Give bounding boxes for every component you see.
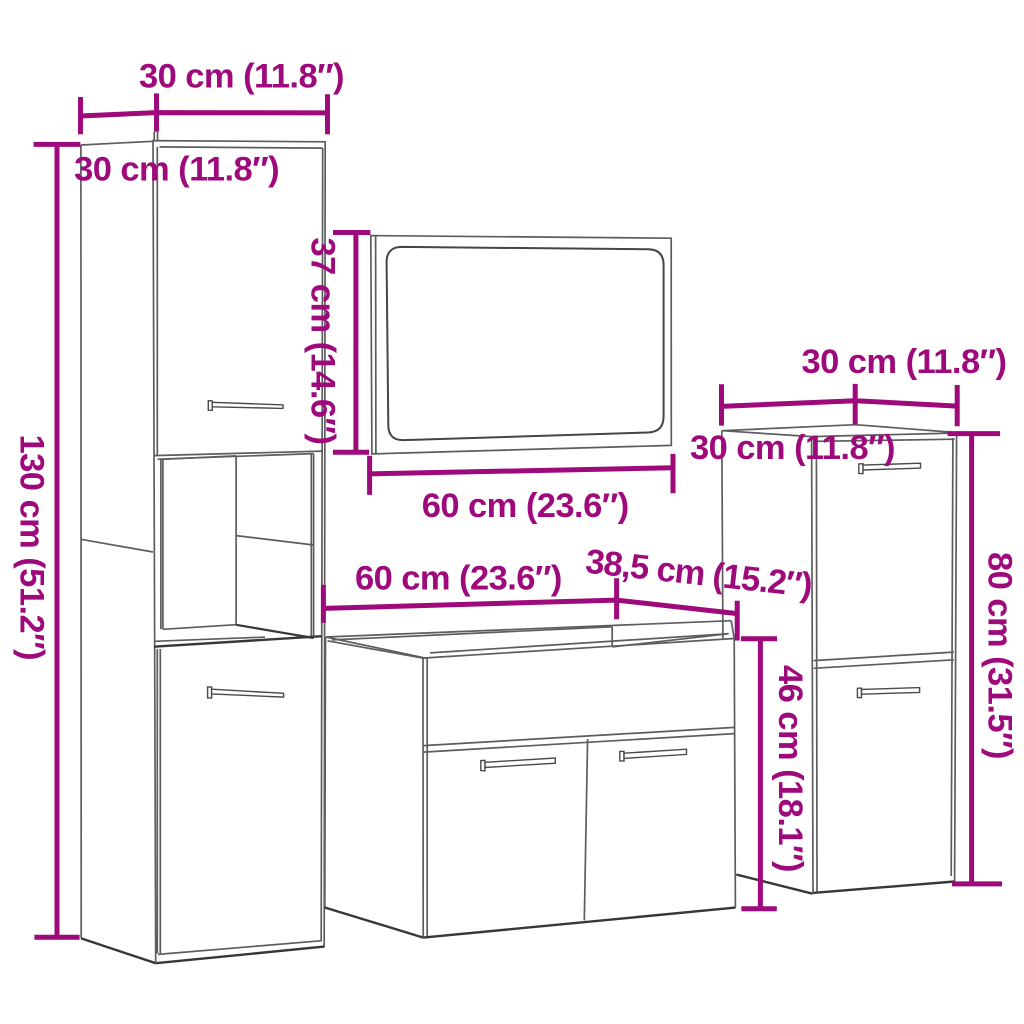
svg-text:30 cm (11.8″): 30 cm (11.8″): [74, 151, 279, 189]
svg-text:30 cm (11.8″): 30 cm (11.8″): [139, 58, 344, 96]
svg-text:30 cm (11.8″): 30 cm (11.8″): [690, 429, 895, 467]
svg-text:80 cm (31.5″): 80 cm (31.5″): [980, 552, 1018, 759]
svg-text:130 cm (51.2″): 130 cm (51.2″): [13, 435, 51, 661]
svg-text:30 cm (11.8″): 30 cm (11.8″): [801, 343, 1006, 381]
svg-text:46 cm (18.1″): 46 cm (18.1″): [771, 665, 809, 872]
svg-text:60 cm (23.6″): 60 cm (23.6″): [355, 559, 562, 597]
svg-text:60 cm (23.6″): 60 cm (23.6″): [422, 487, 629, 525]
svg-text:37 cm (14.6″): 37 cm (14.6″): [304, 238, 342, 445]
